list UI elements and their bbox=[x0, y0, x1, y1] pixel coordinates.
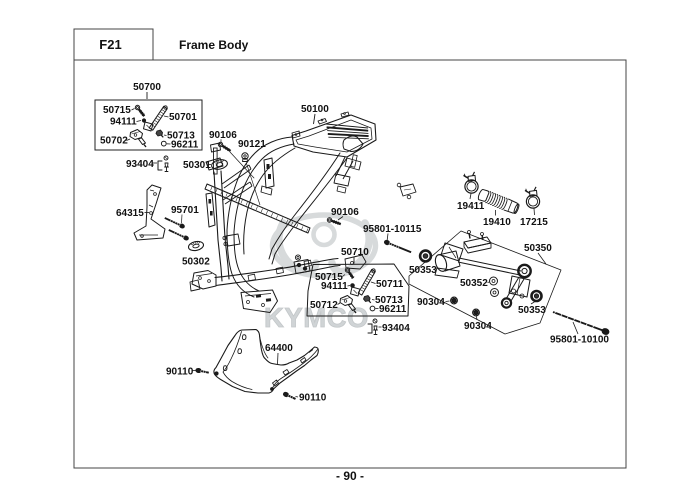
svg-text:50701: 50701 bbox=[169, 112, 197, 123]
svg-text:19411: 19411 bbox=[457, 201, 485, 212]
svg-text:50711: 50711 bbox=[376, 279, 404, 290]
svg-text:50715: 50715 bbox=[103, 105, 131, 116]
svg-text:90110: 90110 bbox=[299, 393, 327, 404]
svg-text:50301: 50301 bbox=[183, 160, 211, 171]
svg-text:90304: 90304 bbox=[464, 321, 492, 332]
svg-text:19410: 19410 bbox=[483, 217, 511, 228]
svg-text:50302: 50302 bbox=[182, 257, 210, 268]
svg-text:93404: 93404 bbox=[126, 159, 154, 170]
svg-text:50700: 50700 bbox=[133, 82, 161, 93]
svg-text:94111: 94111 bbox=[321, 281, 348, 292]
svg-text:95801-10115: 95801-10115 bbox=[363, 224, 422, 235]
svg-text:96211: 96211 bbox=[379, 304, 407, 315]
svg-text:64400: 64400 bbox=[265, 343, 293, 354]
svg-text:Frame Body: Frame Body bbox=[179, 38, 249, 52]
svg-text:- 90 -: - 90 - bbox=[336, 469, 364, 483]
svg-text:50100: 50100 bbox=[301, 104, 329, 115]
svg-text:50710: 50710 bbox=[341, 247, 369, 258]
svg-text:90121: 90121 bbox=[238, 139, 266, 150]
svg-text:64315: 64315 bbox=[116, 208, 144, 219]
svg-text:50353: 50353 bbox=[409, 265, 437, 276]
svg-text:95801-10100: 95801-10100 bbox=[550, 335, 609, 346]
svg-text:50702: 50702 bbox=[100, 136, 128, 147]
svg-text:93404: 93404 bbox=[382, 323, 410, 334]
svg-text:96211: 96211 bbox=[171, 140, 199, 151]
svg-text:90106: 90106 bbox=[331, 207, 359, 218]
svg-text:90106: 90106 bbox=[209, 130, 237, 141]
svg-text:17215: 17215 bbox=[520, 217, 548, 228]
svg-text:90110: 90110 bbox=[166, 367, 194, 378]
svg-text:50712: 50712 bbox=[310, 300, 338, 311]
svg-text:50352: 50352 bbox=[460, 278, 488, 289]
svg-text:94111: 94111 bbox=[110, 117, 137, 128]
svg-text:95701: 95701 bbox=[171, 205, 199, 216]
svg-text:50350: 50350 bbox=[524, 243, 552, 254]
svg-text:F21: F21 bbox=[99, 37, 121, 52]
svg-text:50353: 50353 bbox=[518, 305, 546, 316]
svg-text:90304: 90304 bbox=[417, 297, 445, 308]
